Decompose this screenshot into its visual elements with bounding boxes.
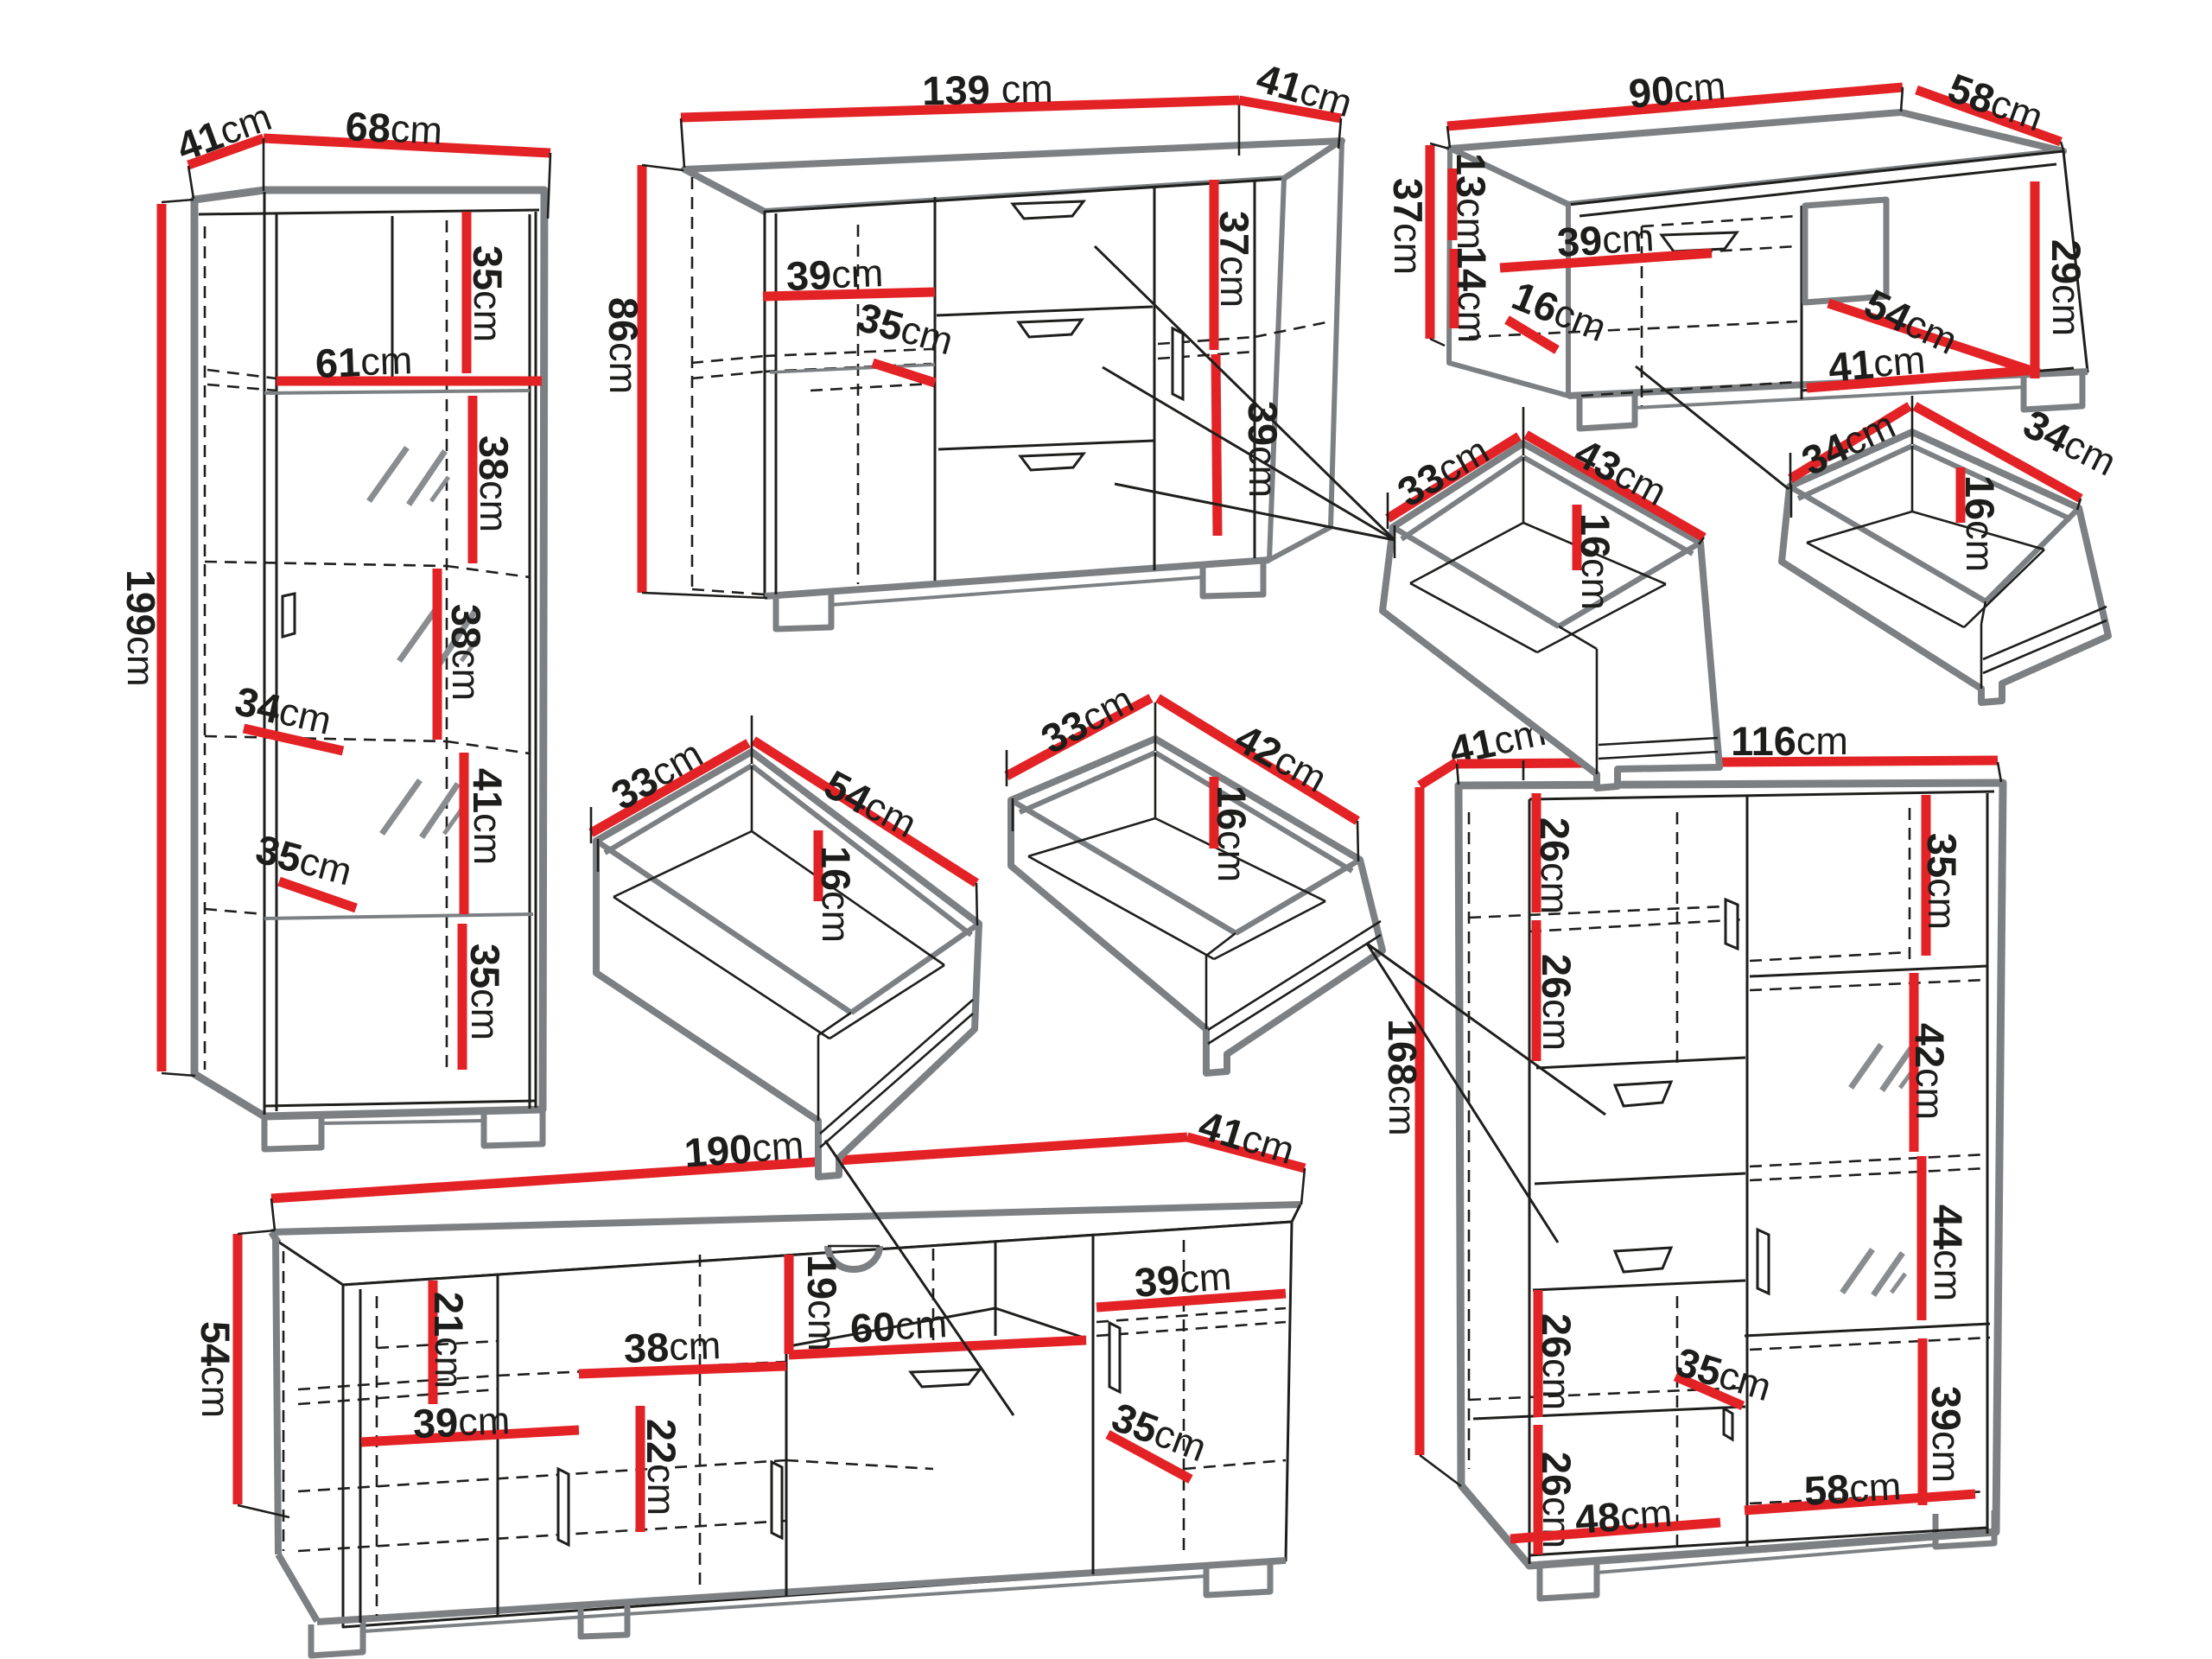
svg-text:168cm: 168cm xyxy=(1380,1019,1425,1135)
svg-text:26cm: 26cm xyxy=(1533,817,1579,914)
svg-text:26cm: 26cm xyxy=(1535,1313,1580,1410)
svg-text:41cm: 41cm xyxy=(1827,336,1927,391)
svg-text:39cm: 39cm xyxy=(1556,214,1656,265)
svg-text:35cm: 35cm xyxy=(463,944,509,1040)
svg-text:39cm: 39cm xyxy=(1924,1386,1970,1483)
svg-text:13cm: 13cm xyxy=(1449,153,1495,250)
svg-text:26cm: 26cm xyxy=(1535,954,1580,1051)
svg-text:22cm: 22cm xyxy=(639,1419,685,1516)
svg-text:16cm: 16cm xyxy=(1573,513,1619,610)
svg-text:86cm: 86cm xyxy=(601,297,647,394)
svg-text:14cm: 14cm xyxy=(1450,246,1496,343)
svg-text:58cm: 58cm xyxy=(1803,1463,1903,1514)
svg-text:39cm: 39cm xyxy=(1133,1253,1233,1306)
svg-text:38cm: 38cm xyxy=(472,435,518,532)
svg-text:39cm: 39cm xyxy=(1241,401,1287,498)
svg-text:37cm: 37cm xyxy=(1212,211,1258,308)
svg-text:16cm: 16cm xyxy=(1210,785,1255,882)
svg-text:38cm: 38cm xyxy=(444,604,490,701)
svg-text:61cm: 61cm xyxy=(315,337,413,386)
svg-text:16cm: 16cm xyxy=(814,846,860,943)
svg-text:54cm: 54cm xyxy=(194,1321,239,1418)
svg-text:39cm: 39cm xyxy=(412,1397,511,1446)
svg-text:21cm: 21cm xyxy=(427,1292,473,1389)
svg-text:37cm: 37cm xyxy=(1386,178,1432,275)
svg-text:60cm: 60cm xyxy=(849,1300,949,1351)
svg-text:35cm: 35cm xyxy=(466,245,512,342)
svg-text:44cm: 44cm xyxy=(1926,1205,1972,1301)
svg-text:190cm: 190cm xyxy=(683,1122,805,1176)
svg-text:139 cm: 139 cm xyxy=(922,65,1053,113)
svg-text:35cm: 35cm xyxy=(1920,833,1966,930)
svg-text:19cm: 19cm xyxy=(800,1255,846,1351)
svg-text:38cm: 38cm xyxy=(623,1322,721,1371)
svg-text:41cm: 41cm xyxy=(466,768,512,865)
svg-text:39cm: 39cm xyxy=(785,250,884,299)
svg-text:16cm: 16cm xyxy=(1958,475,2004,572)
svg-text:199cm: 199cm xyxy=(118,569,163,686)
svg-text:68cm: 68cm xyxy=(345,103,444,154)
svg-text:42cm: 42cm xyxy=(1908,1023,1954,1120)
svg-text:90cm: 90cm xyxy=(1627,62,1727,117)
svg-text:116cm: 116cm xyxy=(1731,718,1848,764)
svg-text:48cm: 48cm xyxy=(1573,1490,1674,1542)
svg-text:29cm: 29cm xyxy=(2044,239,2090,336)
